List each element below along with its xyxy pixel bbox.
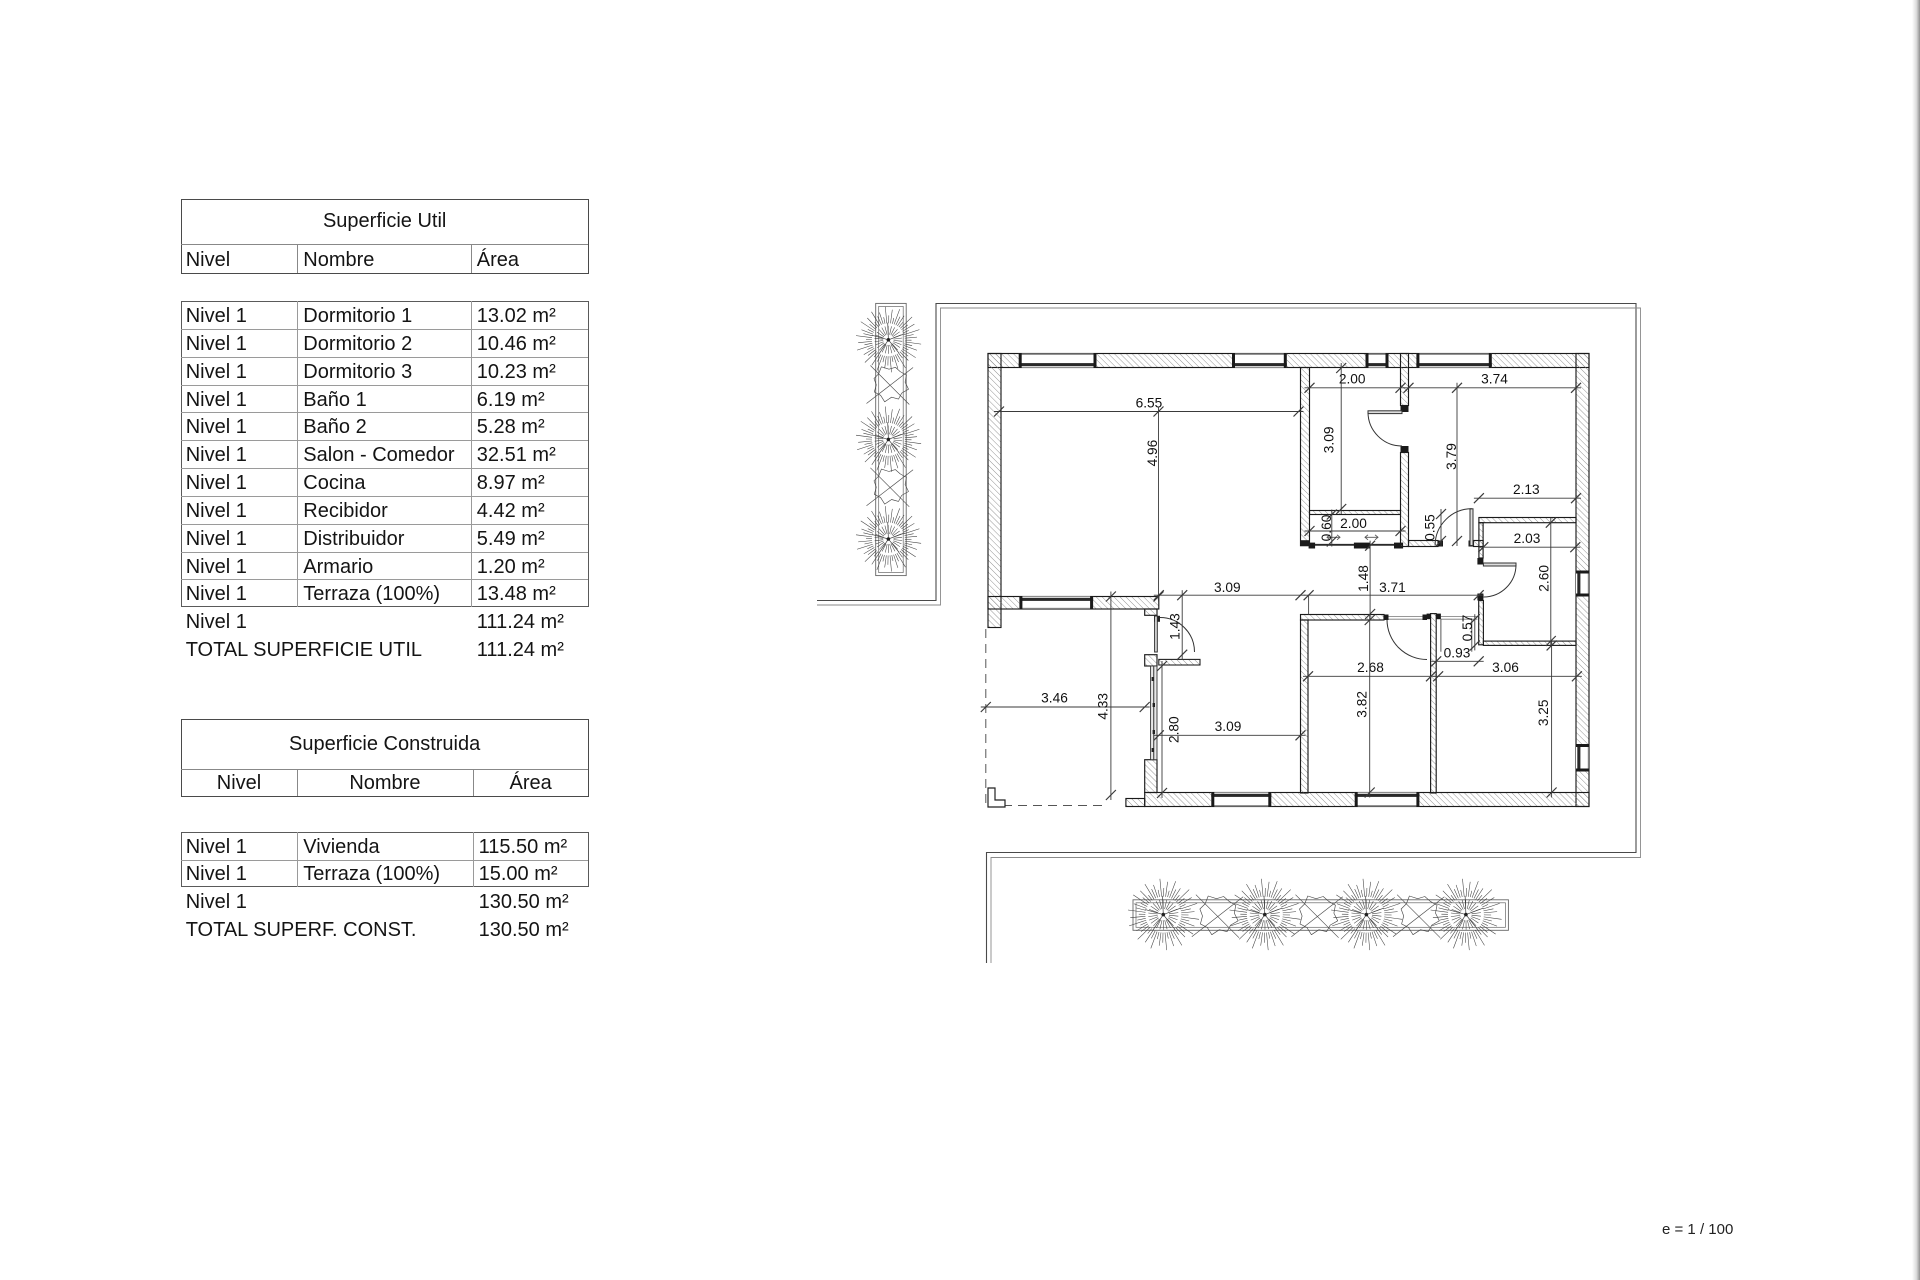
svg-text:3.82: 3.82 [1355, 691, 1370, 718]
svg-text:3.71: 3.71 [1379, 580, 1406, 595]
svg-text:4.96: 4.96 [1145, 439, 1160, 466]
svg-text:0.93: 0.93 [1444, 645, 1471, 660]
svg-text:0.55: 0.55 [1423, 514, 1438, 541]
svg-text:2.03: 2.03 [1514, 531, 1541, 546]
svg-text:2.60: 2.60 [1537, 565, 1552, 592]
svg-text:3.79: 3.79 [1444, 443, 1459, 470]
svg-text:3.46: 3.46 [1041, 691, 1068, 706]
svg-text:3.09: 3.09 [1215, 719, 1242, 734]
svg-text:2.13: 2.13 [1513, 482, 1540, 497]
svg-text:3.06: 3.06 [1492, 660, 1519, 675]
svg-text:2.00: 2.00 [1340, 516, 1367, 531]
svg-text:1.48: 1.48 [1356, 565, 1371, 592]
svg-text:3.74: 3.74 [1481, 372, 1508, 387]
svg-text:3.09: 3.09 [1321, 427, 1336, 454]
svg-text:3.09: 3.09 [1214, 580, 1241, 595]
svg-text:4.33: 4.33 [1095, 693, 1110, 720]
svg-text:0.60: 0.60 [1319, 514, 1334, 541]
svg-text:2.68: 2.68 [1357, 660, 1384, 675]
svg-text:0.57: 0.57 [1460, 615, 1475, 642]
svg-text:2.80: 2.80 [1166, 716, 1181, 743]
svg-text:2.00: 2.00 [1339, 372, 1366, 387]
svg-text:1.43: 1.43 [1167, 613, 1182, 640]
svg-text:3.25: 3.25 [1536, 699, 1551, 726]
